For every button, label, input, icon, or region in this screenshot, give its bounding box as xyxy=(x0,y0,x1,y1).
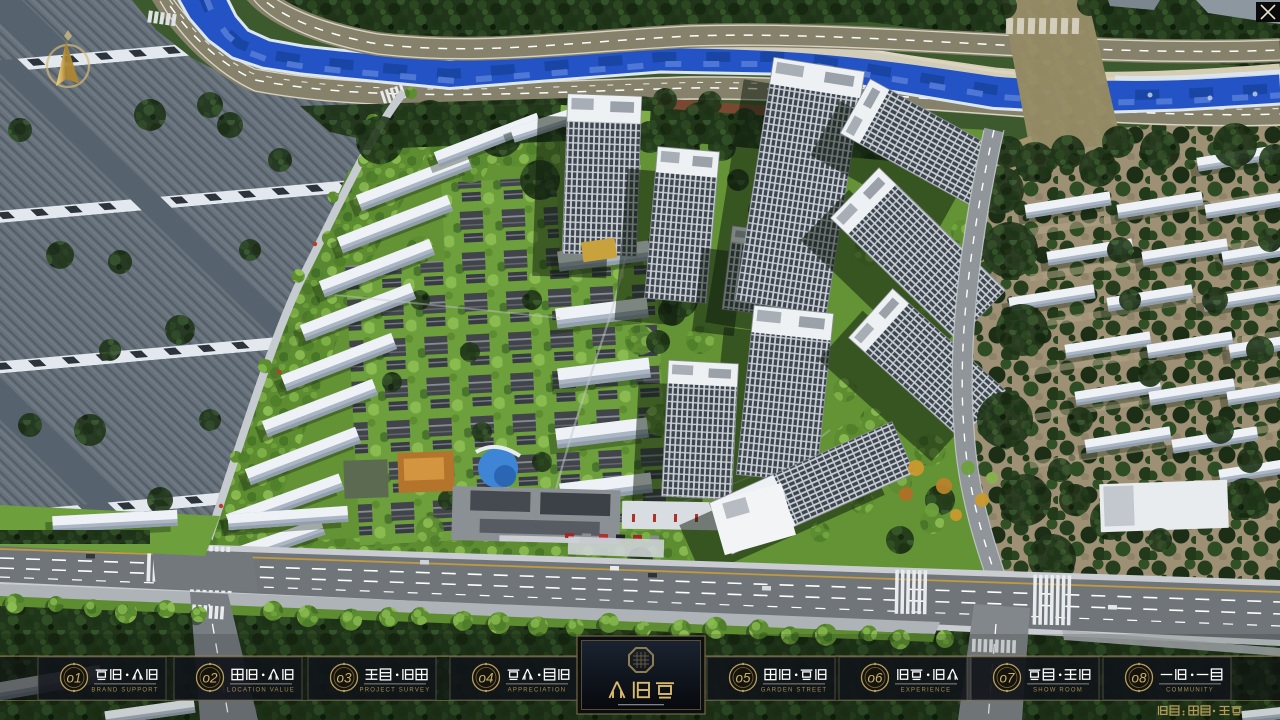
svg-text:o7: o7 xyxy=(999,671,1015,686)
svg-text:PROJECT SURVEY: PROJECT SURVEY xyxy=(360,688,431,694)
svg-text:LOCATION VALUE: LOCATION VALUE xyxy=(227,688,295,694)
svg-text:o3: o3 xyxy=(336,671,352,686)
svg-text:EXPERIENCE: EXPERIENCE xyxy=(901,688,952,694)
svg-text:o6: o6 xyxy=(867,671,883,686)
svg-text:o4: o4 xyxy=(478,671,493,686)
svg-text:SHOW ROOM: SHOW ROOM xyxy=(1033,688,1083,694)
svg-text:o1: o1 xyxy=(66,671,81,686)
svg-text:GARDEN STREET: GARDEN STREET xyxy=(761,688,828,694)
svg-text:o2: o2 xyxy=(202,671,218,686)
svg-text:o8: o8 xyxy=(1131,671,1147,686)
svg-text:APPRECIATION: APPRECIATION xyxy=(508,688,567,694)
svg-text:BRAND SUPPORT: BRAND SUPPORT xyxy=(91,688,158,694)
svg-text:COMMUNITY: COMMUNITY xyxy=(1166,688,1214,694)
svg-text:o5: o5 xyxy=(735,671,751,686)
